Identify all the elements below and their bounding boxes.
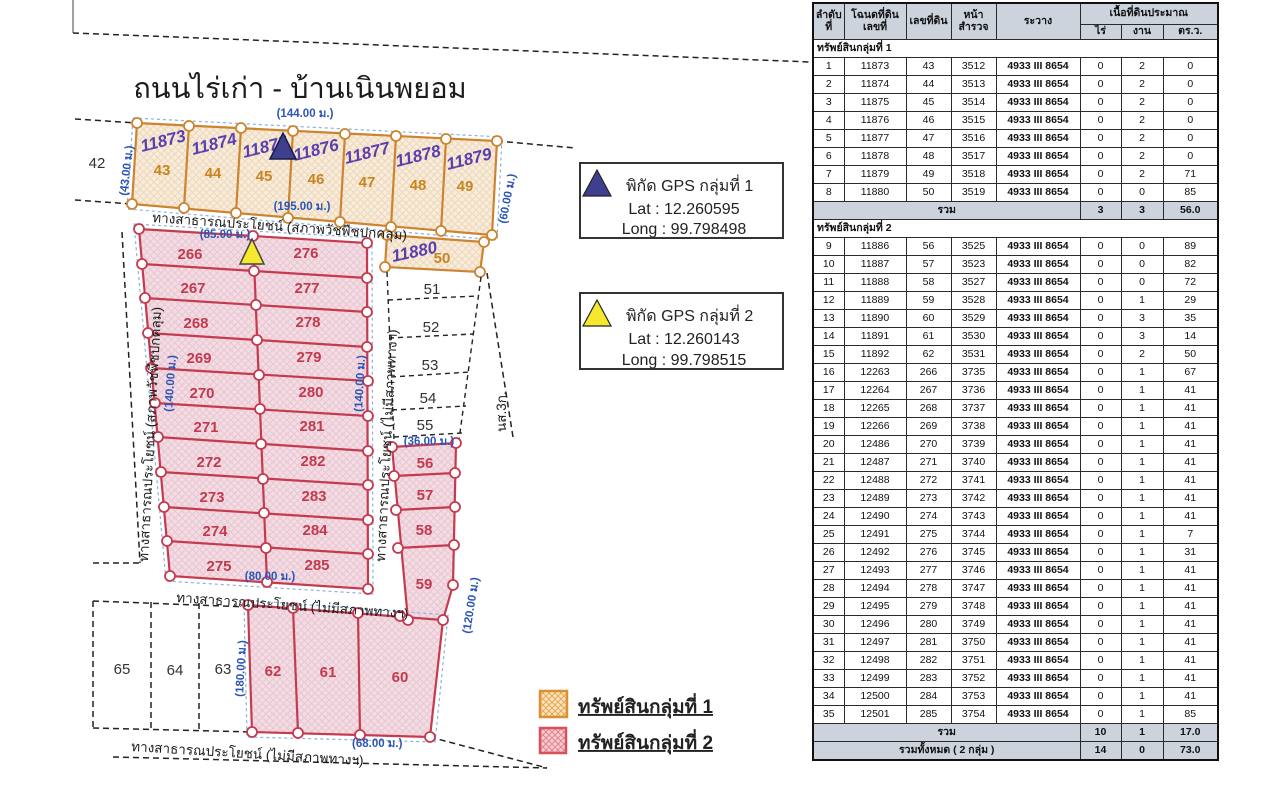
svg-text:62: 62 <box>265 663 282 680</box>
land-table-body: ทรัพย์สินกลุ่มที่ 11118734335124933 III … <box>813 40 1218 761</box>
svg-text:48: 48 <box>410 177 427 194</box>
table-row: 11118885835274933 III 86540072 <box>813 274 1218 292</box>
table-row: 301249628037494933 III 86540141 <box>813 616 1218 634</box>
svg-text:50: 50 <box>434 250 451 267</box>
header-wa: ตร.ว. <box>1163 25 1218 40</box>
legend-swatch-group2 <box>540 728 566 753</box>
table-row: 4118764635154933 III 8654020 <box>813 112 1218 130</box>
svg-text:55: 55 <box>417 417 434 434</box>
table-row: 181226526837374933 III 86540141 <box>813 400 1218 418</box>
table-row: 241249027437434933 III 86540141 <box>813 508 1218 526</box>
grand-total-row: รวมทั้งหมด ( 2 กลุ่ม )14073.0 <box>813 742 1218 761</box>
svg-text:60: 60 <box>392 669 409 686</box>
svg-text:47: 47 <box>359 174 376 191</box>
svg-text:(180.00 ม.): (180.00 ม.) <box>234 640 249 698</box>
table-row: 14118916135304933 III 86540314 <box>813 328 1218 346</box>
table-row: 13118906035294933 III 86540335 <box>813 310 1218 328</box>
table-row: 5118774735164933 III 8654020 <box>813 130 1218 148</box>
table-row: 331249928337524933 III 86540141 <box>813 670 1218 688</box>
table-row: 7118794935184933 III 86540271 <box>813 166 1218 184</box>
table-row: 15118926235314933 III 86540250 <box>813 346 1218 364</box>
svg-text:64: 64 <box>167 662 184 679</box>
table-row: 161226326637354933 III 86540167 <box>813 364 1218 382</box>
svg-text:284: 284 <box>302 522 328 539</box>
svg-text:280: 280 <box>298 384 323 401</box>
table-row: 1118734335124933 III 8654020 <box>813 58 1218 76</box>
plot-numbers-strip: 51 52 53 54 55 <box>417 281 441 434</box>
svg-text:พิกัด GPS กลุ่มที่ 2: พิกัด GPS กลุ่มที่ 2 <box>626 304 753 326</box>
legend-swatch-group1 <box>540 691 567 717</box>
svg-text:(68.00 ม.): (68.00 ม.) <box>352 738 403 750</box>
table-row: 201248627037394933 III 86540141 <box>813 436 1218 454</box>
svg-text:49: 49 <box>457 178 474 195</box>
section-row: ทรัพย์สินกลุ่มที่ 1 <box>813 40 1218 58</box>
svg-text:44: 44 <box>205 165 222 182</box>
table-row: 191226626937384933 III 86540141 <box>813 418 1218 436</box>
parcel-group-bottom: 62 61 60 <box>243 600 448 742</box>
table-row: 251249127537444933 III 8654017 <box>813 526 1218 544</box>
svg-text:270: 270 <box>189 385 214 402</box>
table-row: 8118805035194933 III 86540085 <box>813 184 1218 202</box>
svg-text:279: 279 <box>296 349 321 366</box>
header-area: เนื้อที่ดินประมาณ <box>1080 3 1218 25</box>
svg-text:59: 59 <box>416 576 433 593</box>
svg-text:Lat : 12.260143: Lat : 12.260143 <box>628 331 739 348</box>
svg-text:(36.00 ม.): (36.00 ม.) <box>404 436 455 448</box>
svg-text:281: 281 <box>299 418 324 435</box>
gps-box-1: พิกัด GPS กลุ่มที่ 1 Lat : 12.260595 Lon… <box>580 163 783 238</box>
svg-text:269: 269 <box>186 350 211 367</box>
svg-text:(195.00 ม.): (195.00 ม.) <box>274 201 331 213</box>
svg-text:Long : 99.798498: Long : 99.798498 <box>622 221 747 238</box>
svg-text:268: 268 <box>183 315 208 332</box>
header-page: หน้า สำรวจ <box>951 3 996 40</box>
table-row: 291249527937484933 III 86540141 <box>813 598 1218 616</box>
svg-text:43: 43 <box>154 162 171 179</box>
header-plot: เลขที่ดิน <box>906 3 951 40</box>
legend-label-group2: ทรัพย์สินกลุ่มที่ 2 <box>578 729 713 755</box>
svg-text:46: 46 <box>308 171 325 188</box>
survey-map: ถนนไร่เก่า - บ้านเนินพยอม 11873 11874 11… <box>0 0 810 804</box>
table-row: 231248927337424933 III 86540141 <box>813 490 1218 508</box>
table-row: 351250128537544933 III 86540185 <box>813 706 1218 724</box>
subtotal-row: รวม3356.0 <box>813 202 1218 220</box>
svg-text:(80.00 ม.): (80.00 ม.) <box>245 571 296 583</box>
svg-text:267: 267 <box>180 280 205 297</box>
svg-text:278: 278 <box>295 314 320 331</box>
svg-text:พิกัด GPS กลุ่มที่ 1: พิกัด GPS กลุ่มที่ 1 <box>626 174 753 196</box>
svg-text:53: 53 <box>422 357 439 374</box>
svg-text:Long : 99.798515: Long : 99.798515 <box>622 352 747 369</box>
table-row: 341250028437534933 III 86540141 <box>813 688 1218 706</box>
map-title: ถนนไร่เก่า - บ้านเนินพยอม <box>133 71 467 105</box>
plot-number-42: 42 <box>89 155 106 172</box>
svg-text:Lat : 12.260595: Lat : 12.260595 <box>628 201 739 218</box>
svg-text:(60.00 ม.): (60.00 ม.) <box>497 173 518 225</box>
header-ravang: ระวาง <box>996 3 1080 40</box>
svg-text:ทางสาธารณประโยชน์ (ไม่มีสภาพทา: ทางสาธารณประโยชน์ (ไม่มีสภาพทางฯ) <box>131 738 364 768</box>
header-rai: ไร่ <box>1080 25 1121 40</box>
table-row: 171226426737364933 III 86540141 <box>813 382 1218 400</box>
table-row: 321249828237514933 III 86540141 <box>813 652 1218 670</box>
svg-text:นส.3ก.: นส.3ก. <box>494 391 509 432</box>
table-row: 281249427837474933 III 86540141 <box>813 580 1218 598</box>
dashed-strip-51-55: 51 52 53 54 55 <box>387 272 481 440</box>
legend-label-group1: ทรัพย์สินกลุ่มที่ 1 <box>578 693 713 719</box>
svg-text:54: 54 <box>420 390 437 407</box>
svg-text:65: 65 <box>114 661 131 678</box>
table-row: 221248827237414933 III 86540141 <box>813 472 1218 490</box>
svg-text:276: 276 <box>293 245 318 262</box>
svg-text:272: 272 <box>196 454 221 471</box>
plot-numbers-bottom-dashed: 65 64 63 <box>114 661 232 679</box>
gps-box-2: พิกัด GPS กลุ่มที่ 2 Lat : 12.260143 Lon… <box>580 293 783 369</box>
svg-text:266: 266 <box>177 246 202 263</box>
table-row: 10118875735234933 III 86540082 <box>813 256 1218 274</box>
svg-text:285: 285 <box>304 557 329 574</box>
map-legend: ทรัพย์สินกลุ่มที่ 1 ทรัพย์สินกลุ่มที่ 2 <box>540 691 713 755</box>
svg-text:(144.00 ม.): (144.00 ม.) <box>277 108 334 120</box>
table-row: 261249227637454933 III 86540131 <box>813 544 1218 562</box>
table-row: 9118865635254933 III 86540089 <box>813 238 1218 256</box>
svg-text:(120.00 ม.): (120.00 ม.) <box>461 576 482 634</box>
svg-text:271: 271 <box>193 419 218 436</box>
table-row: 12118895935284933 III 86540129 <box>813 292 1218 310</box>
header-ngan: งาน <box>1121 25 1163 40</box>
table-row: 311249728137504933 III 86540141 <box>813 634 1218 652</box>
table-row: 6118784835174933 III 8654020 <box>813 148 1218 166</box>
svg-text:52: 52 <box>423 319 440 336</box>
table-row: 3118754535144933 III 8654020 <box>813 94 1218 112</box>
svg-text:282: 282 <box>300 453 325 470</box>
svg-text:45: 45 <box>256 168 273 185</box>
svg-text:56: 56 <box>417 455 434 472</box>
svg-text:58: 58 <box>416 522 433 539</box>
parcel-col-56-59: 56 57 58 59 <box>387 438 461 620</box>
land-table: ลำดับ ที่ โฉนดที่ดิน เลขที่ เลขที่ดิน หน… <box>812 2 1218 761</box>
table-row: 2118744435134933 III 8654020 <box>813 76 1218 94</box>
table-row: 271249327737464933 III 86540141 <box>813 562 1218 580</box>
svg-text:275: 275 <box>206 558 231 575</box>
svg-text:273: 273 <box>199 489 224 506</box>
section-row: ทรัพย์สินกลุ่มที่ 2 <box>813 220 1218 238</box>
svg-text:277: 277 <box>294 280 319 297</box>
svg-text:283: 283 <box>301 488 326 505</box>
table-row: 211248727137404933 III 86540141 <box>813 454 1218 472</box>
svg-text:51: 51 <box>424 281 441 298</box>
header-seq: ลำดับ ที่ <box>813 3 844 40</box>
svg-text:274: 274 <box>202 523 228 540</box>
svg-text:63: 63 <box>215 661 232 678</box>
svg-text:61: 61 <box>320 664 337 681</box>
header-deed: โฉนดที่ดิน เลขที่ <box>844 3 906 40</box>
subtotal-row: รวม10117.0 <box>813 724 1218 742</box>
svg-text:57: 57 <box>417 487 434 504</box>
